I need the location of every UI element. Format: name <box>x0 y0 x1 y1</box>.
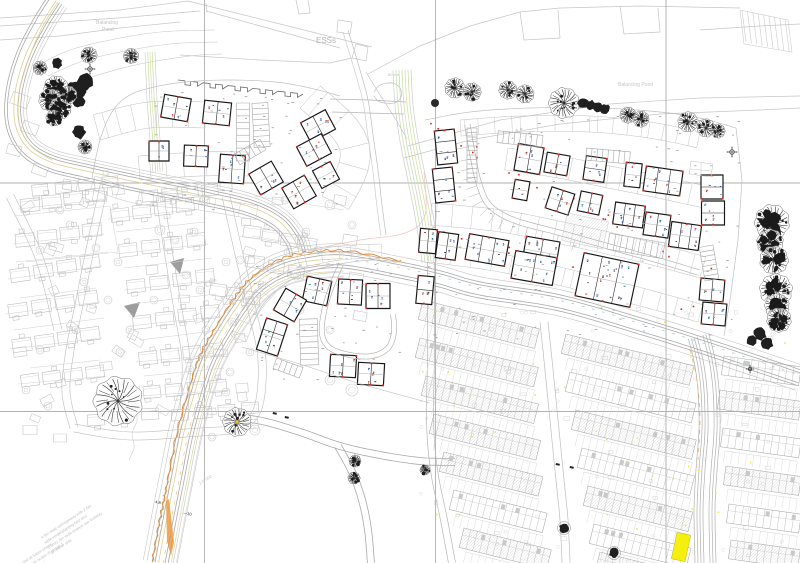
svg-text:ESSs: ESSs <box>316 36 336 45</box>
svg-text:Balancing Pond: Balancing Pond <box>618 82 653 88</box>
svg-text:Balancing: Balancing <box>96 20 118 26</box>
svg-text:Pond: Pond <box>102 27 114 33</box>
svg-text:50.4m: 50.4m <box>388 72 400 77</box>
